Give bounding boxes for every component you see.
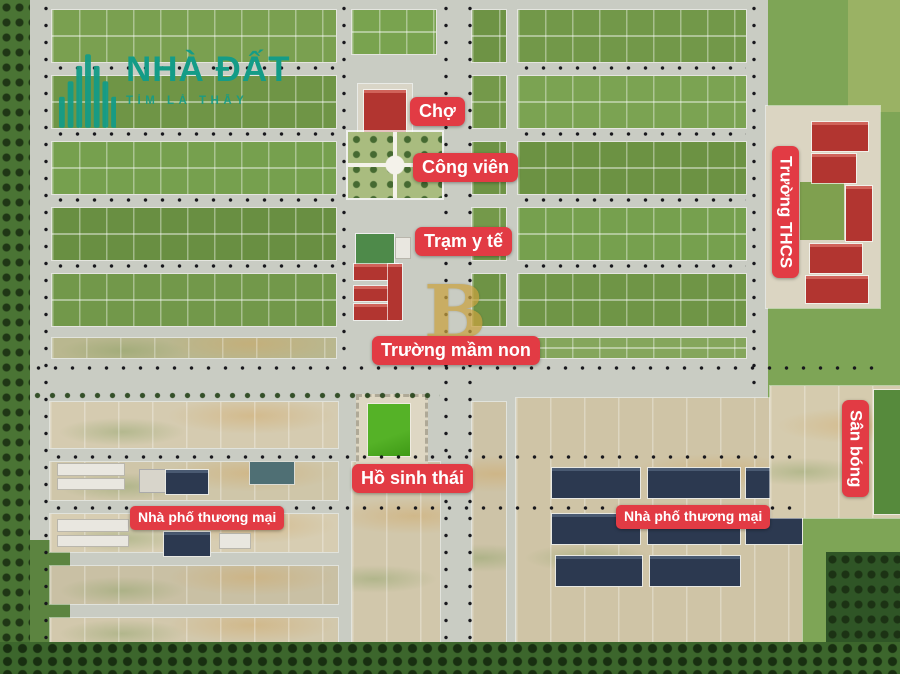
label-secondary-school: Trường THCS <box>772 146 799 278</box>
land-block <box>52 274 336 326</box>
land-block <box>518 338 746 358</box>
road-dots <box>50 455 800 459</box>
townhouse-row <box>552 468 640 498</box>
small-building <box>58 464 124 475</box>
townhouse-row <box>556 556 642 586</box>
road-dots <box>518 264 746 268</box>
road-dots <box>342 0 346 360</box>
school-building <box>806 276 868 303</box>
label-market: Chợ <box>410 97 465 126</box>
land-block <box>52 338 336 358</box>
label-medical-station: Trạm y tế <box>415 227 512 256</box>
road-dots <box>52 198 336 202</box>
label-eco-lake: Hồ sinh thái <box>352 464 473 493</box>
logo-subtitle: TÌM LÀ THẤY <box>126 95 290 107</box>
label-shophouse-left: Nhà phố thương mại <box>130 506 284 530</box>
land-block <box>518 76 746 128</box>
small-building <box>220 534 250 548</box>
road-dots <box>518 198 746 202</box>
townhouse-row <box>164 532 210 556</box>
land-block <box>472 10 506 62</box>
kindergarten-building <box>354 286 388 301</box>
land-block <box>518 10 746 62</box>
label-football-field: Sân bóng <box>842 400 869 497</box>
school-building <box>810 244 862 273</box>
corner-field <box>848 0 900 112</box>
land-block <box>472 76 506 128</box>
small-building <box>250 462 294 484</box>
tree-hedge <box>0 642 900 674</box>
market-building <box>364 90 406 133</box>
school-courtyard <box>800 182 844 240</box>
small-building <box>58 520 128 531</box>
townhouse-row <box>648 468 740 498</box>
land-block <box>518 142 746 194</box>
roadside-trees <box>30 392 440 399</box>
sand-block <box>50 566 338 604</box>
eco-lake <box>368 404 410 456</box>
road-dots <box>44 0 48 640</box>
road-dots <box>518 132 746 136</box>
aerial-scene: B Chợ Công viên Trạm y tế Trường mầm non… <box>0 0 900 674</box>
brand-logo: NHÀ ĐẤT TÌM LÀ THẤY <box>58 52 290 133</box>
sand-block <box>50 618 338 642</box>
school-building <box>812 154 856 183</box>
land-block <box>52 142 336 194</box>
road-dots <box>752 0 756 388</box>
road-dots <box>518 66 746 70</box>
football-field <box>874 390 900 514</box>
townhouse-row <box>650 556 740 586</box>
land-block <box>52 208 336 260</box>
label-shophouse-right: Nhà phố thương mại <box>616 505 770 529</box>
left-vegetation <box>0 0 30 674</box>
sand-block <box>50 402 338 448</box>
land-block <box>518 274 746 326</box>
land-block <box>518 208 746 260</box>
school-building <box>846 186 872 241</box>
road-dots <box>52 264 336 268</box>
land-block <box>352 10 436 54</box>
medical-building <box>356 234 394 264</box>
logo-title: NHÀ ĐẤT <box>126 52 290 89</box>
sand-block <box>472 402 506 642</box>
label-kindergarten: Trường mầm non <box>372 336 540 365</box>
medical-annex <box>396 238 410 258</box>
label-park: Công viên <box>413 153 518 182</box>
small-building <box>58 479 124 489</box>
small-building <box>58 536 128 546</box>
house-bars-icon <box>58 52 116 133</box>
townhouse-row <box>166 470 208 494</box>
school-building <box>812 122 868 151</box>
road-dots <box>30 366 880 370</box>
kindergarten-building <box>388 264 402 320</box>
